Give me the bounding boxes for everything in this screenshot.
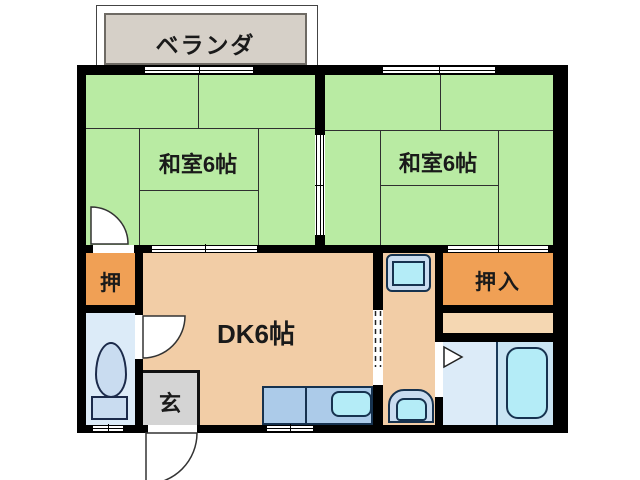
genkan-label: 玄 <box>142 386 198 418</box>
door-swing-overlay <box>0 0 640 480</box>
floor-plan: ベランダ <box>0 0 640 480</box>
oshi-door-swing <box>91 207 128 244</box>
veranda-label: ベランダ <box>104 26 307 60</box>
oshi-label: 押 <box>86 267 135 297</box>
washitsu-left-label: 和室6帖 <box>128 147 268 179</box>
washitsu-right-label: 和室6帖 <box>368 146 508 178</box>
entrance-door-swing <box>146 433 197 480</box>
bath-folding-door <box>444 347 462 367</box>
toilet-door-swing <box>143 316 185 358</box>
dk-label: DK6帖 <box>196 314 316 351</box>
oshiire-label: 押入 <box>443 266 553 296</box>
